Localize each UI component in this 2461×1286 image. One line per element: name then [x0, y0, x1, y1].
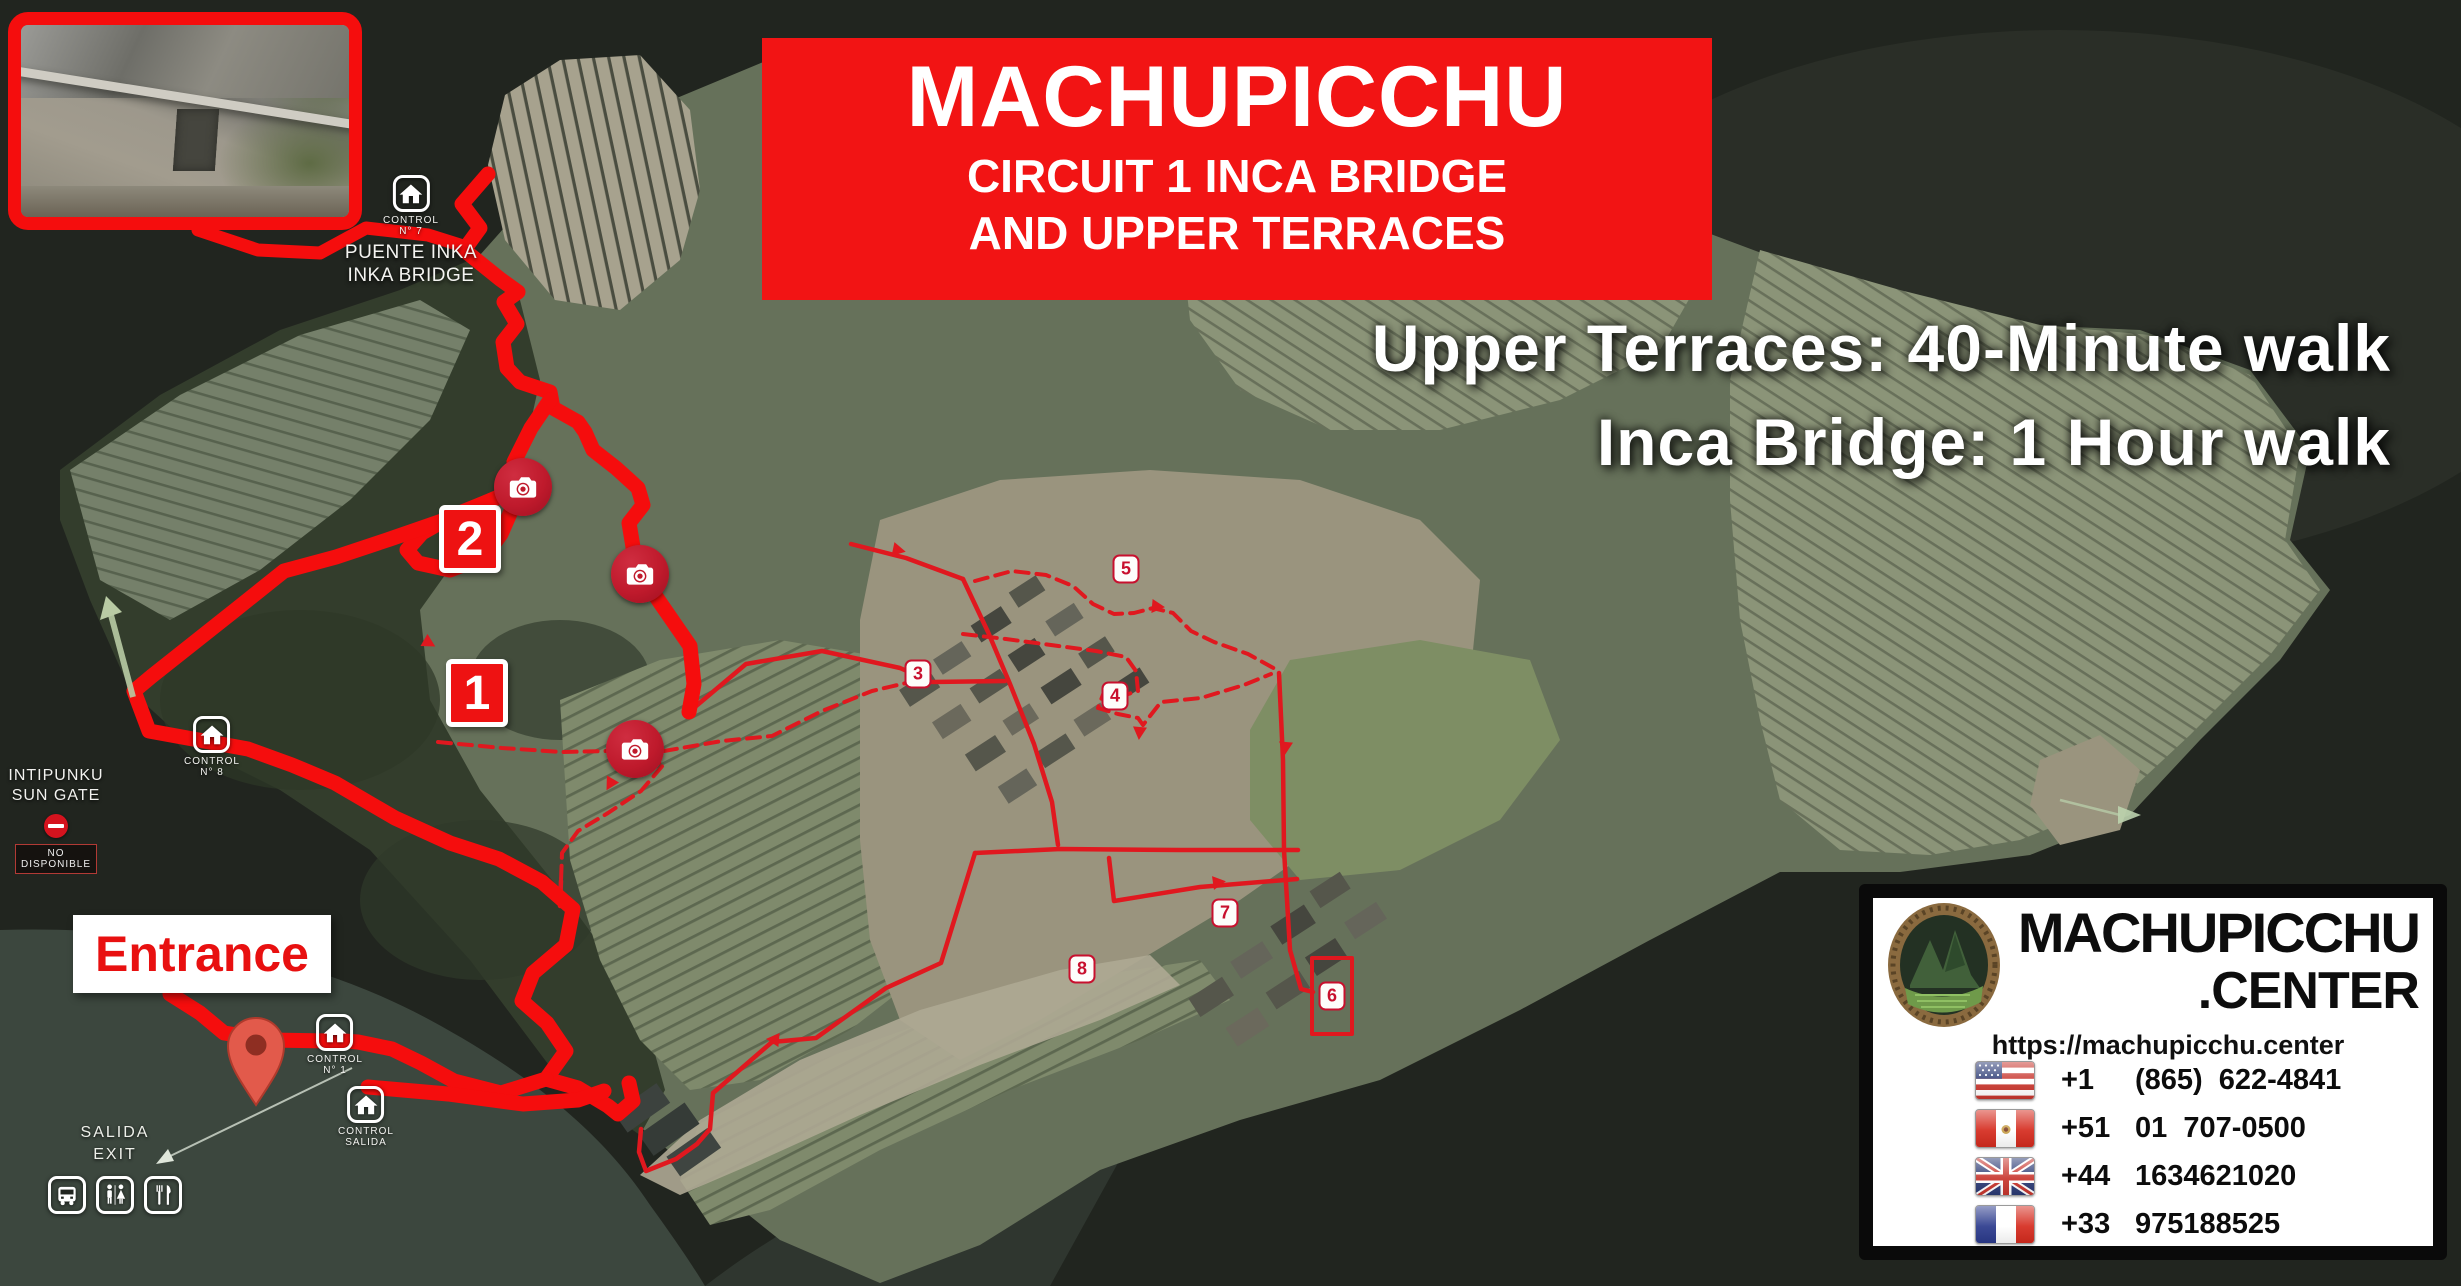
phone-row-france: +33 975188525	[1975, 1204, 2341, 1244]
inka-bridge-label: INKA BRIDGE	[345, 264, 477, 287]
waypoint-8-badge: 8	[1069, 955, 1096, 984]
phone-row-peru: +51 01 707-0500	[1975, 1108, 2341, 1148]
exit-sign: SALIDA EXIT	[60, 1122, 170, 1166]
poster-title: MACHUPICCHU	[762, 48, 1712, 146]
control-number: SALIDA	[338, 1137, 394, 1148]
control-label: CONTROL	[345, 215, 477, 226]
sun-gate-label: SUN GATE	[6, 786, 106, 806]
stop-2-number: 2	[457, 512, 484, 567]
control-label: CONTROL	[307, 1054, 363, 1065]
control-label: CONTROL	[184, 756, 240, 767]
sun-gate-label-block: INTIPUNKU SUN GATE NO DISPONIBLE	[6, 766, 106, 874]
inca-bridge-duration: Inca Bridge: 1 Hour walk	[1372, 404, 2391, 480]
upper-terraces-duration: Upper Terraces: 40-Minute walk	[1372, 310, 2391, 386]
inka-bridge-photo	[8, 12, 362, 230]
phone-code: +1	[2061, 1064, 2135, 1097]
stone-wall-art	[21, 186, 349, 217]
waypoint-4-badge: 4	[1102, 682, 1129, 711]
station-control-8: CONTROL N° 8	[184, 716, 240, 778]
facilities-icons	[48, 1176, 182, 1214]
camera-photo-spot-icon	[494, 458, 552, 516]
title-banner: MACHUPICCHU CIRCUIT 1 INCA BRIDGE AND UP…	[762, 38, 1712, 300]
waypoint-6-badge: 6	[1319, 982, 1346, 1011]
contact-card: MACHUPICCHU .CENTER https://machupicchu.…	[1859, 884, 2447, 1260]
waypoint-number: 5	[1121, 559, 1131, 580]
station-control-salida: CONTROL SALIDA	[338, 1086, 394, 1148]
restaurant-icon	[144, 1176, 182, 1214]
usa-flag-icon	[1975, 1061, 2035, 1100]
house-icon	[392, 175, 429, 212]
phone-number: 01 707-0500	[2135, 1112, 2306, 1145]
phone-code: +33	[2061, 1208, 2135, 1241]
uk-flag-icon	[1975, 1157, 2035, 1196]
website-url: https://machupicchu.center	[1963, 1030, 2373, 1061]
waypoint-7-badge: 7	[1212, 899, 1239, 928]
route-stop-1-marker: 1	[446, 659, 508, 727]
exit-label: EXIT	[60, 1144, 170, 1166]
phone-code: +51	[2061, 1112, 2135, 1145]
machupicchu-center-logo	[1885, 900, 2003, 1030]
phone-row-uk: +44 1634621020	[1975, 1156, 2341, 1196]
waypoint-number: 4	[1110, 686, 1120, 707]
restroom-icon	[96, 1176, 134, 1214]
house-icon	[348, 1086, 385, 1123]
control-number: N° 1	[307, 1065, 363, 1076]
entrance-label-box: Entrance	[73, 915, 331, 993]
status-badge: NO DISPONIBLE	[15, 844, 97, 874]
salida-label: SALIDA	[60, 1122, 170, 1144]
house-icon	[194, 716, 231, 753]
phone-row-usa: +1 (865) 622-4841	[1975, 1060, 2341, 1100]
poster-subtitle-2: AND UPPER TERRACES	[762, 207, 1712, 260]
peru-flag-icon	[1975, 1109, 2035, 1148]
control-number: N° 7	[345, 226, 477, 237]
waypoint-3-badge: 3	[905, 660, 932, 689]
waypoint-number: 7	[1220, 903, 1230, 924]
control-number: N° 8	[184, 767, 240, 778]
stop-1-number: 1	[464, 666, 491, 721]
entrance-label: Entrance	[95, 925, 309, 983]
bus-icon	[48, 1176, 86, 1214]
waypoint-5-badge: 5	[1113, 555, 1140, 584]
poster-subtitle-1: CIRCUIT 1 INCA BRIDGE	[762, 150, 1712, 203]
house-icon	[317, 1014, 354, 1051]
control-label: CONTROL	[338, 1126, 394, 1137]
no-entry-icon	[44, 814, 68, 838]
france-flag-icon	[1975, 1205, 2035, 1244]
brand-line-2: .CENTER	[2018, 964, 2419, 1018]
phone-code: +44	[2061, 1160, 2135, 1193]
intipunku-label: INTIPUNKU	[6, 766, 106, 786]
waypoint-number: 3	[913, 664, 923, 685]
brand-line-1: MACHUPICCHU	[2018, 902, 2419, 964]
walk-duration-info: Upper Terraces: 40-Minute walk Inca Brid…	[1372, 310, 2391, 480]
phone-number: 975188525	[2135, 1208, 2280, 1241]
puente-inka-label: PUENTE INKA	[345, 241, 477, 264]
station-puente-inka: CONTROL N° 7 PUENTE INKA INKA BRIDGE	[345, 175, 477, 287]
route-stop-2-marker: 2	[439, 505, 501, 573]
waypoint-number: 8	[1077, 959, 1087, 980]
phone-number: 1634621020	[2135, 1160, 2296, 1193]
brand-wordmark: MACHUPICCHU .CENTER	[2018, 902, 2419, 1018]
camera-photo-spot-icon	[606, 720, 664, 778]
phone-number: (865) 622-4841	[2135, 1064, 2341, 1097]
station-control-1: CONTROL N° 1	[307, 1014, 363, 1076]
phone-list: +1 (865) 622-4841 +51 01 707-0500	[1975, 1060, 2341, 1252]
bridge-gap-art	[173, 109, 219, 171]
machupicchu-circuit-map-poster: MACHUPICCHU CIRCUIT 1 INCA BRIDGE AND UP…	[0, 0, 2461, 1286]
waypoint-number: 6	[1327, 986, 1337, 1007]
cliff-rockface-art	[21, 17, 349, 98]
camera-photo-spot-icon	[611, 545, 669, 603]
